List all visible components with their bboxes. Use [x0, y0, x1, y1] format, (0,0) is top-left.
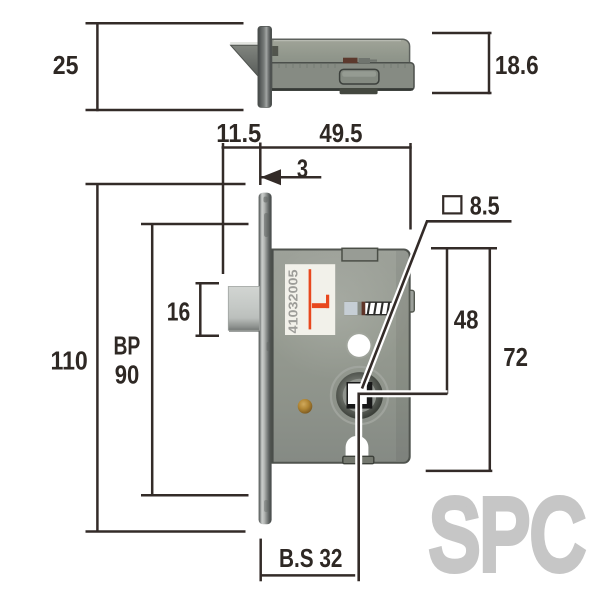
svg-text:BP: BP — [114, 331, 141, 361]
svg-text:3: 3 — [297, 154, 308, 184]
svg-text:110: 110 — [51, 346, 88, 376]
svg-text:16: 16 — [167, 297, 190, 327]
svg-text:48: 48 — [454, 305, 479, 335]
svg-text:90: 90 — [115, 360, 140, 390]
svg-text:8.5: 8.5 — [470, 190, 500, 220]
svg-text:72: 72 — [503, 342, 528, 372]
svg-text:41032005: 41032005 — [286, 270, 301, 334]
svg-text:11.5: 11.5 — [216, 118, 261, 148]
svg-text:B.S 32: B.S 32 — [279, 543, 342, 573]
svg-text:49.5: 49.5 — [319, 118, 362, 148]
svg-text:18.6: 18.6 — [495, 50, 539, 80]
svg-text:SPC: SPC — [429, 479, 585, 591]
svg-text:25: 25 — [53, 50, 79, 80]
